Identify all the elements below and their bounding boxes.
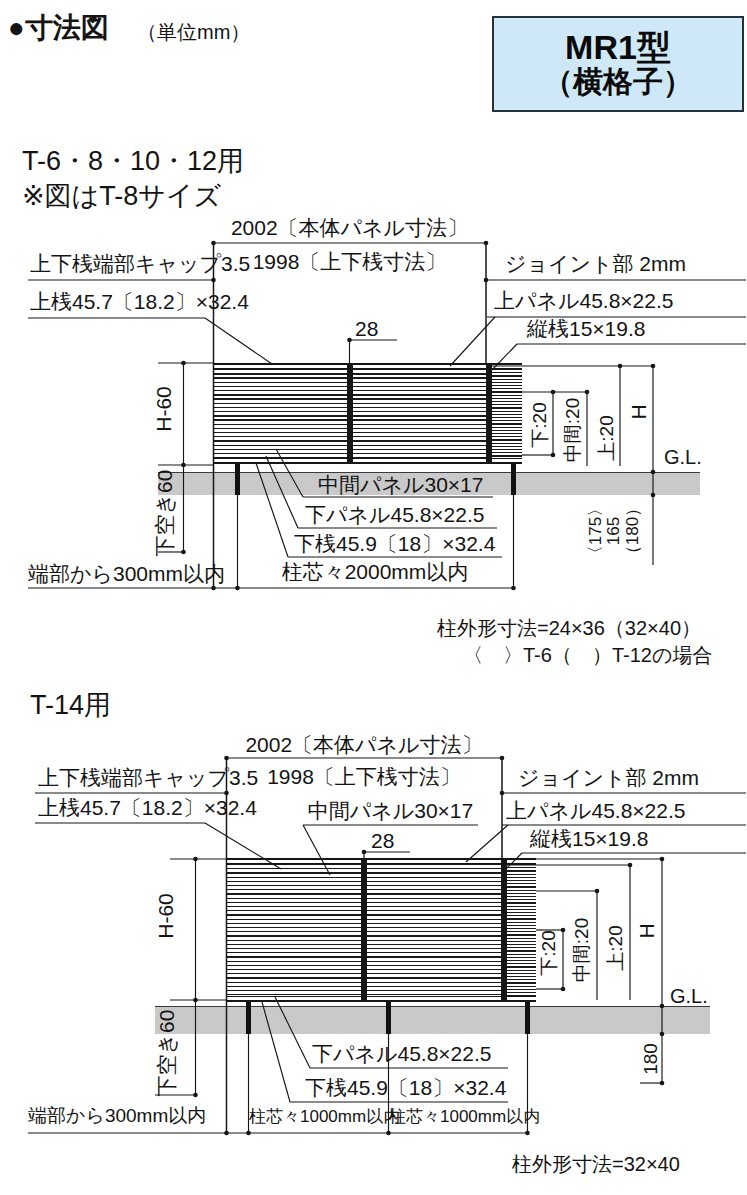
section2-dim-h: H (635, 923, 659, 938)
section2-dim-lower-20: 下:20 (538, 930, 560, 975)
section1-label-vertical-bar: 縦桟15×19.8 (527, 317, 646, 341)
section2-dim-post-pitch-2: 柱芯々1000mm以内 (389, 1107, 527, 1127)
model-badge-line2: （横格子） (543, 66, 693, 98)
section2-label-mid-panel: 中間パネル30×17 (303, 799, 478, 823)
section1-label-top-panel: 上パネル45.8×22.5 (494, 289, 673, 313)
section2-dim-rails: 1998〔上下桟寸法〕 (226, 765, 502, 789)
section1-dim-h: H (627, 404, 651, 419)
page-title: ●寸法図 (8, 12, 109, 44)
section1-dim-28: 28 (355, 317, 378, 341)
section1-label-bottom-rail: 下桟45.9〔18〕×32.4 (294, 532, 495, 556)
section2-dim-embed-180: 180 (640, 1043, 662, 1075)
embed-value-t6: 〈175〉 (587, 500, 605, 562)
section1-dim-rails: 1998〔上下桟寸法〕 (213, 250, 486, 274)
drawing-lines (0, 0, 747, 1195)
section1-note-variant: 〈 〉T-6（ ）T-12の場合 (463, 644, 712, 667)
unit-note: （単位mm） (137, 21, 250, 44)
section2-dim-bottom-gap: 下空き60 (155, 1010, 179, 1097)
section2-label-bottom-rail: 下桟45.9〔18〕×32.4 (305, 1076, 506, 1100)
section2-label-top-panel: 上パネル45.8×22.5 (506, 799, 685, 823)
section1-gl-label: G.L. (664, 446, 702, 469)
embed-value-t12: （180） (624, 500, 642, 562)
section1-note-post-size: 柱外形寸法=24×36（32×40） (437, 617, 701, 640)
section1-dim-edge: 端部から300mm以内 (28, 562, 225, 586)
section1-dim-panel-overall: 2002〔本体パネル寸法〕 (213, 216, 486, 240)
section1-dim-middle-20: 中間:20 (562, 398, 584, 462)
model-badge-line1: MR1型 (565, 29, 671, 66)
section2-dim-panel-overall: 2002〔本体パネル寸法〕 (226, 733, 502, 757)
model-badge: MR1型 （横格子） (492, 16, 744, 112)
dimension-drawing-page: ●寸法図 （単位mm） MR1型 （横格子） T-6・8・10・12用 ※図はT… (0, 0, 747, 1195)
embed-value: 165 (606, 500, 624, 562)
section1-label-mid-panel: 中間パネル30×17 (318, 473, 483, 497)
section1-title: T-6・8・10・12用 (22, 146, 244, 177)
section1-dim-post-pitch: 柱芯々2000mm以内 (237, 560, 513, 584)
section2-dim-post-pitch-1: 柱芯々1000mm以内 (249, 1107, 387, 1127)
section1-size-note: ※図はT-8サイズ (22, 181, 221, 212)
section1-label-joint-gap: ジョイント部 2mm (505, 252, 686, 276)
section1-dim-bottom-gap: 下空き60 (153, 470, 177, 557)
section1-dim-embed: 〈175〉 165 （180） (587, 500, 642, 562)
section1-label-end-cap: 上下桟端部キャップ3.5 (30, 252, 250, 276)
section2-label-bottom-panel: 下パネル45.8×22.5 (312, 1042, 491, 1066)
section1-label-top-rail: 上桟45.7〔18.2〕×32.4 (30, 290, 249, 314)
section1-label-bottom-panel: 下パネル45.8×22.5 (305, 503, 484, 527)
section2-dim-28: 28 (371, 829, 394, 853)
section2-dim-middle-20: 中間:20 (571, 918, 593, 982)
section2-dim-h60: H-60 (154, 893, 178, 939)
section2-dim-edge: 端部から300mm以内 (28, 1105, 206, 1127)
section2-dim-upper-20: 上:20 (605, 925, 627, 970)
section2-note-post-size: 柱外形寸法=32×40 (512, 1153, 680, 1176)
section2-label-vertical-bar: 縦桟15×19.8 (530, 827, 649, 851)
section2-label-top-rail: 上桟45.7〔18.2〕×32.4 (38, 796, 257, 820)
section2-title: T-14用 (30, 690, 111, 721)
section1-dim-h60: H-60 (152, 386, 176, 432)
section1-dim-upper-20: 上:20 (596, 415, 618, 460)
section2-label-joint-gap: ジョイント部 2mm (518, 766, 699, 790)
section2-gl-label: G.L. (670, 985, 708, 1008)
section1-dim-lower-20: 下:20 (529, 402, 551, 447)
section2-label-end-cap: 上下桟端部キャップ3.5 (38, 766, 258, 790)
